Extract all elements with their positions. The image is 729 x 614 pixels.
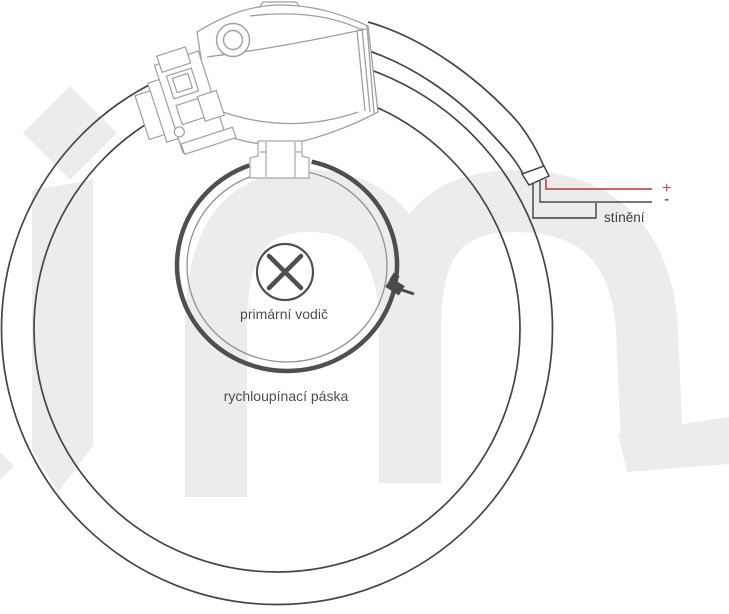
watermark-m-arch2 (410, 201, 652, 483)
output-cable (360, 22, 549, 185)
negative-terminal-label: - (664, 191, 669, 209)
watermark-i-stem (32, 180, 93, 492)
shielding-label: stínění (604, 211, 645, 226)
sensor-housing (197, 2, 378, 145)
housing-neck (250, 141, 309, 178)
cable-outer-edge (368, 22, 544, 167)
current-into-page-icon (257, 244, 313, 300)
quick-release-strap-label: rychloupínací páska (166, 389, 406, 404)
neck-body (250, 141, 309, 178)
grommet-icon (217, 24, 250, 57)
watermark-im (0, 86, 729, 497)
primary-conductor-label: primární vodič (184, 307, 384, 322)
watermark-i-dot (23, 86, 117, 180)
rogowski-coil-diagram: primární vodič rychloupínací páska stíně… (0, 0, 729, 614)
watermark-edge-tick (0, 452, 14, 480)
